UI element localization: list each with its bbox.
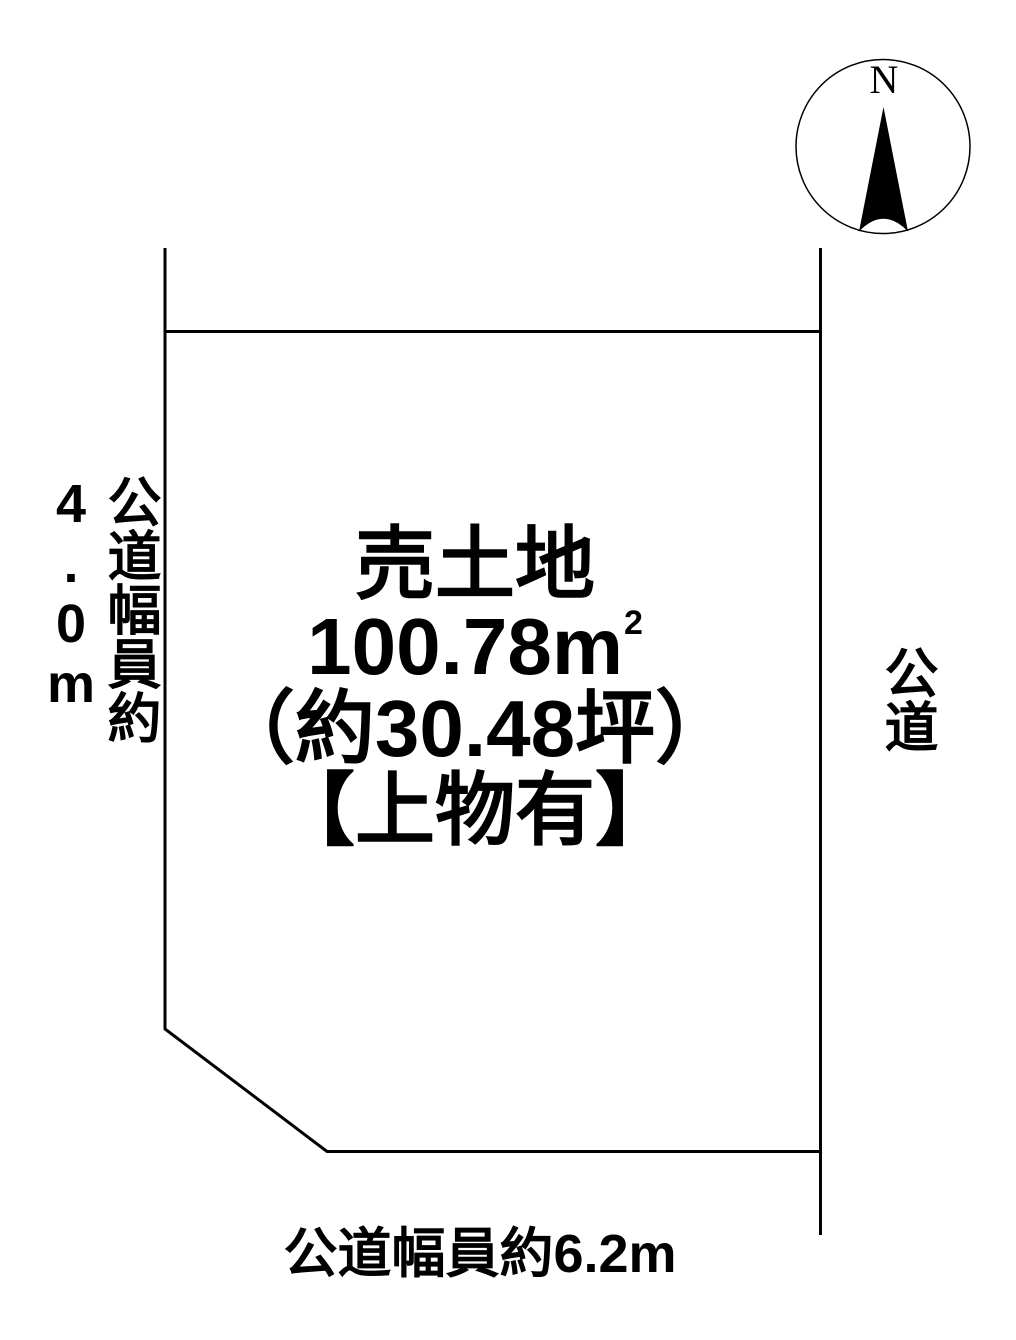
parcel-area-value: 100.78m <box>307 602 623 691</box>
parcel-title: 売土地 <box>115 524 835 606</box>
land-plot-diagram: N 売土地 100.78m2 （約30.48坪） 【上物有】 公道幅員約4.0m… <box>0 0 1016 1340</box>
compass-north-label: N <box>854 60 914 100</box>
road-label-west: 公道幅員約4.0m <box>42 474 158 954</box>
parcel-area-sqm: 100.78m2 <box>115 606 835 688</box>
road-label-south: 公道幅員約6.2m <box>150 1224 810 1284</box>
parcel-building-note: 【上物有】 <box>115 770 835 852</box>
road-label-east: 公道 <box>877 645 935 765</box>
parcel-area-tsubo: （約30.48坪） <box>115 688 835 770</box>
parcel-label: 売土地 100.78m2 （約30.48坪） 【上物有】 <box>115 524 835 852</box>
